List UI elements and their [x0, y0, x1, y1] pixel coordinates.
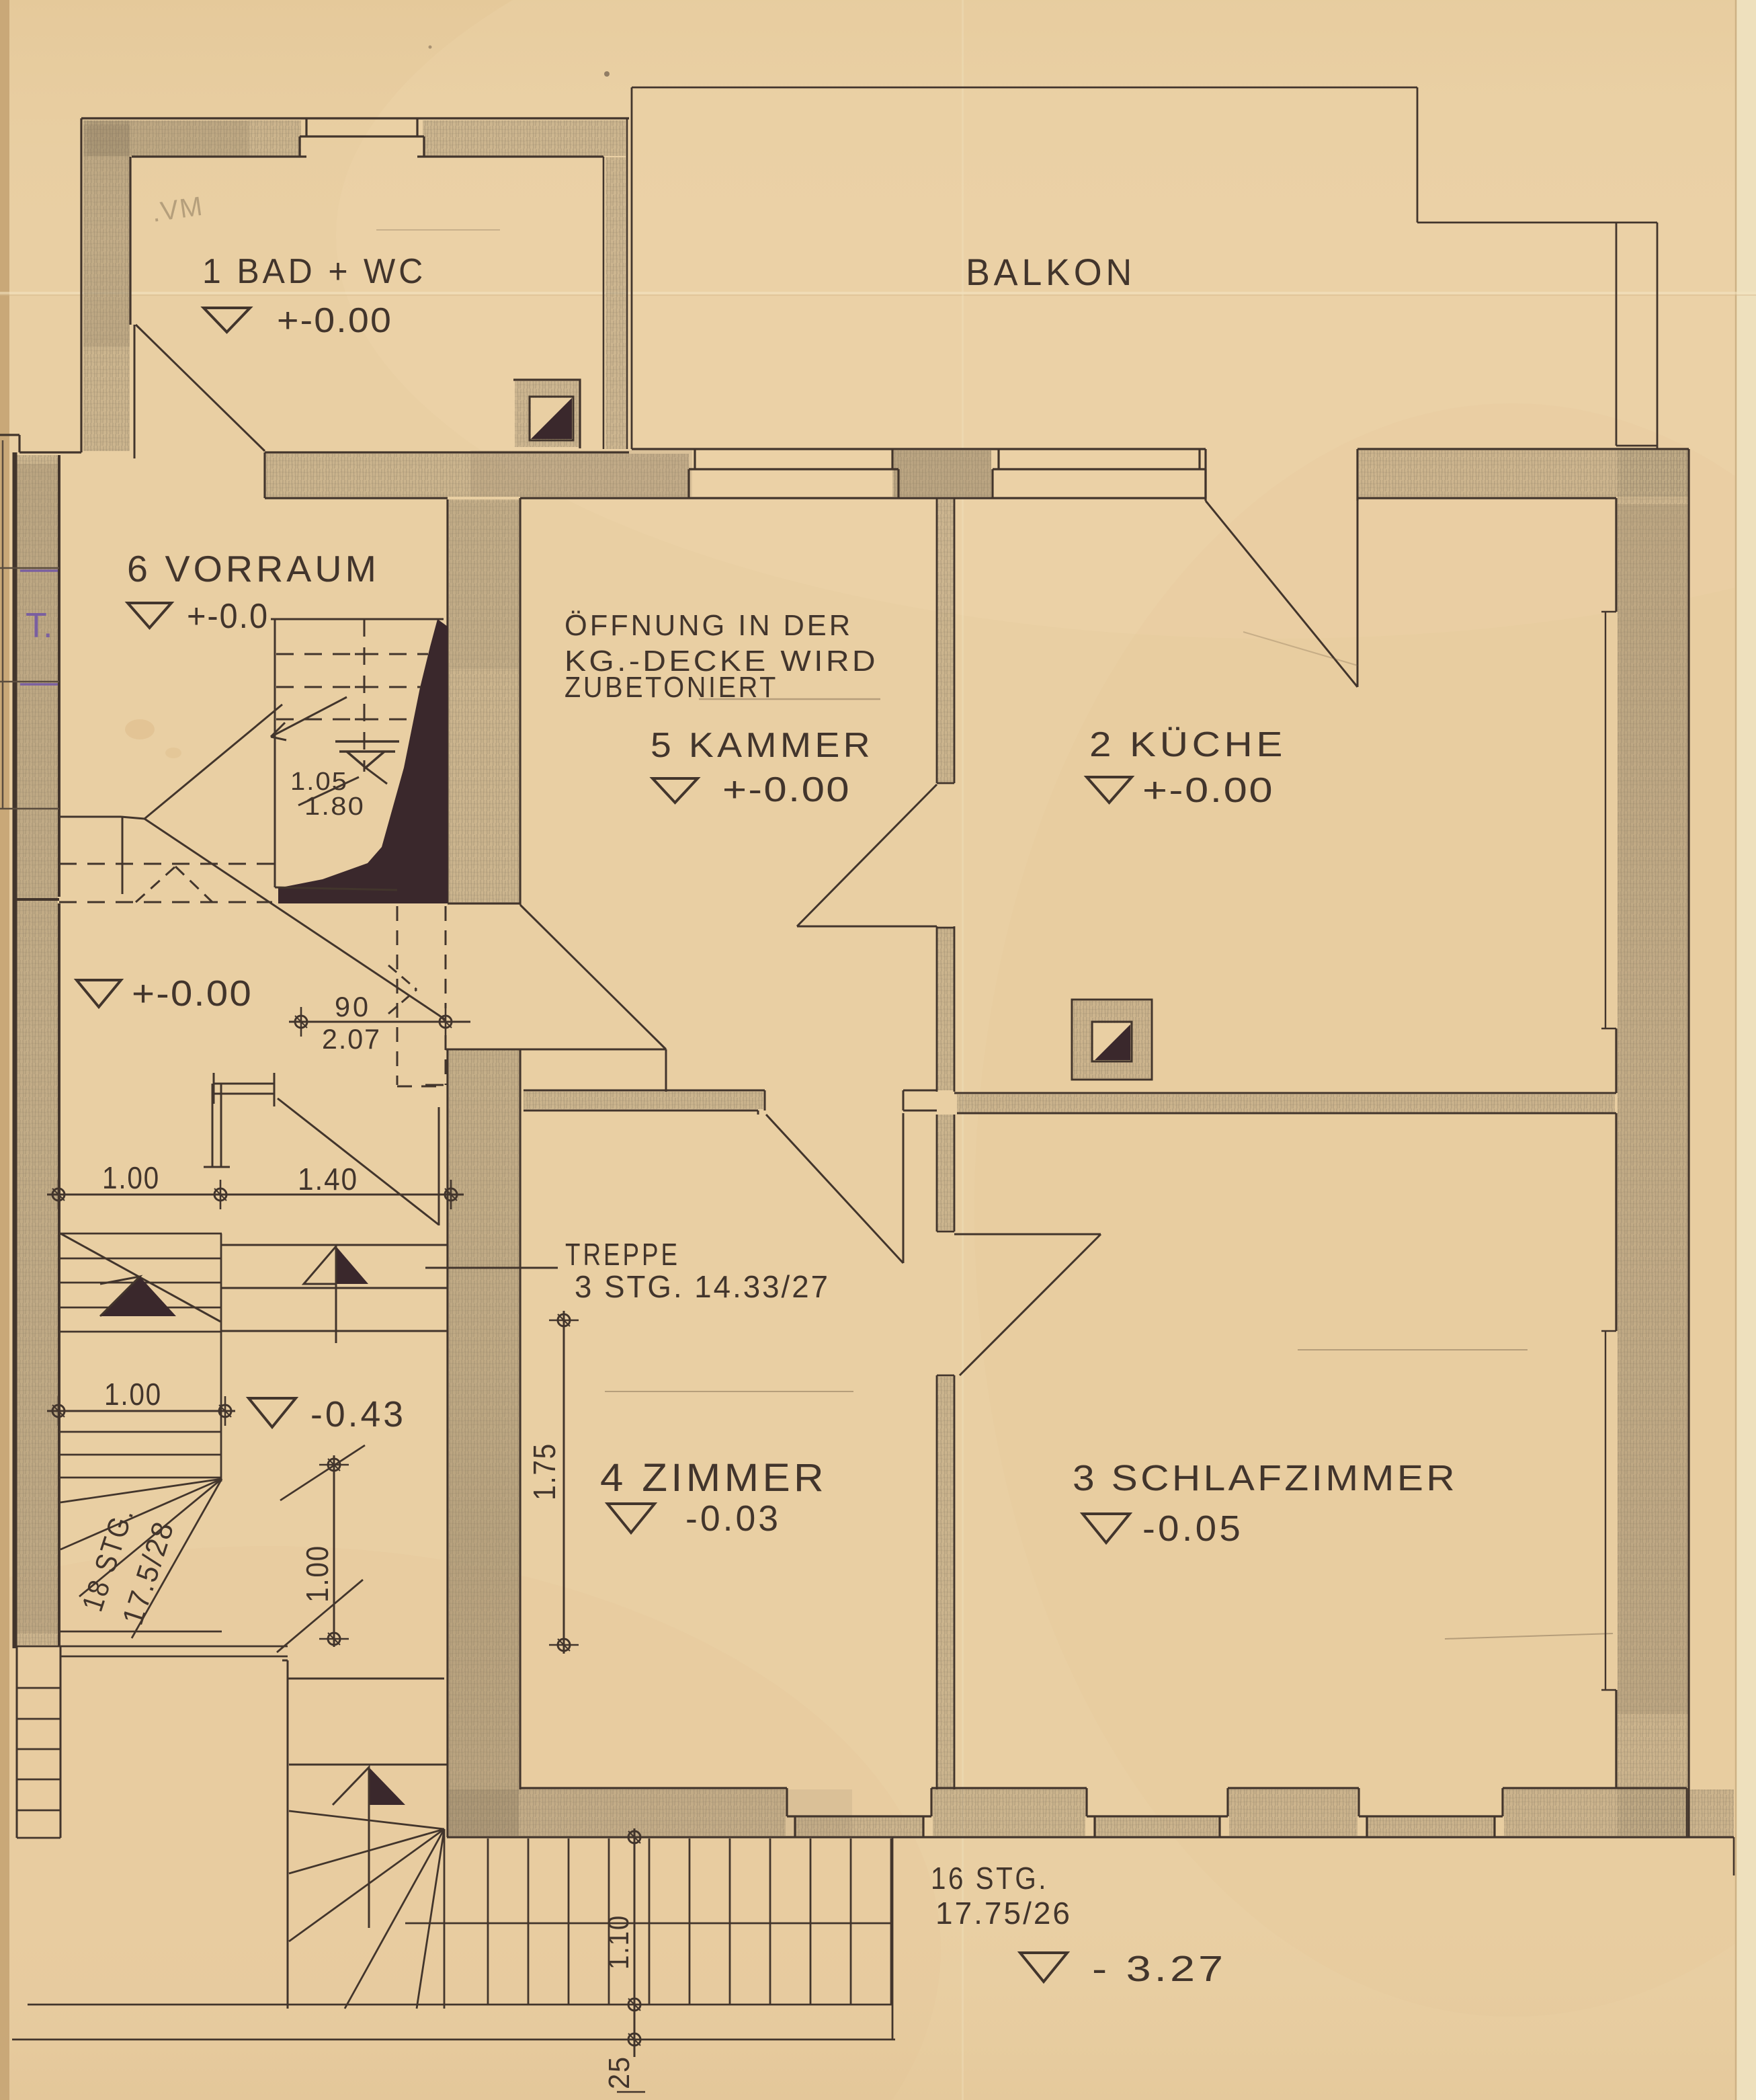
svg-text:2 KÜCHE: 2 KÜCHE [1089, 725, 1286, 764]
svg-text:1.00: 1.00 [300, 1545, 335, 1603]
svg-text:3 SCHLAFZIMMER: 3 SCHLAFZIMMER [1073, 1458, 1458, 1498]
svg-text:17.75/26: 17.75/26 [935, 1896, 1072, 1931]
svg-text:4 ZIMMER: 4 ZIMMER [600, 1456, 827, 1500]
svg-text:1.75: 1.75 [527, 1443, 562, 1500]
svg-text:-0.05: -0.05 [1142, 1508, 1243, 1549]
svg-text:1.00: 1.00 [104, 1377, 162, 1412]
svg-text:2.07: 2.07 [322, 1023, 381, 1055]
svg-text:BALKON: BALKON [966, 251, 1136, 293]
svg-text:+-0.00: +-0.00 [722, 770, 851, 809]
svg-text:T.: T. [26, 606, 52, 645]
svg-text:1.05: 1.05 [290, 768, 348, 796]
svg-text:-0.03: -0.03 [685, 1498, 781, 1539]
svg-text:5 KAMMER: 5 KAMMER [651, 726, 874, 765]
svg-text:+-0.00: +-0.00 [132, 973, 253, 1014]
svg-text:90: 90 [335, 991, 371, 1022]
svg-text:3 STG. 14.33/27: 3 STG. 14.33/27 [575, 1269, 830, 1304]
svg-text:+-0.00: +-0.00 [277, 301, 392, 340]
svg-text:1.00: 1.00 [102, 1160, 160, 1195]
svg-text:ÖFFNUNG IN DER: ÖFFNUNG IN DER [565, 609, 853, 642]
svg-text:1.40: 1.40 [298, 1162, 358, 1197]
svg-text:- 3.27: - 3.27 [1092, 1949, 1226, 1989]
svg-text:1 BAD + WC: 1 BAD + WC [202, 252, 426, 291]
svg-text:TREPPE: TREPPE [565, 1237, 680, 1272]
svg-text:25: 25 [603, 2056, 636, 2089]
svg-text:-0.43: -0.43 [310, 1394, 406, 1435]
svg-text:16 STG.: 16 STG. [931, 1861, 1048, 1896]
svg-text:+-0.00: +-0.00 [1142, 771, 1274, 810]
svg-text:+-0.0: +-0.0 [187, 597, 269, 636]
svg-text:6 VORRAUM: 6 VORRAUM [127, 548, 380, 590]
svg-text:1.80: 1.80 [304, 793, 365, 821]
svg-text:1.10: 1.10 [602, 1914, 635, 1970]
